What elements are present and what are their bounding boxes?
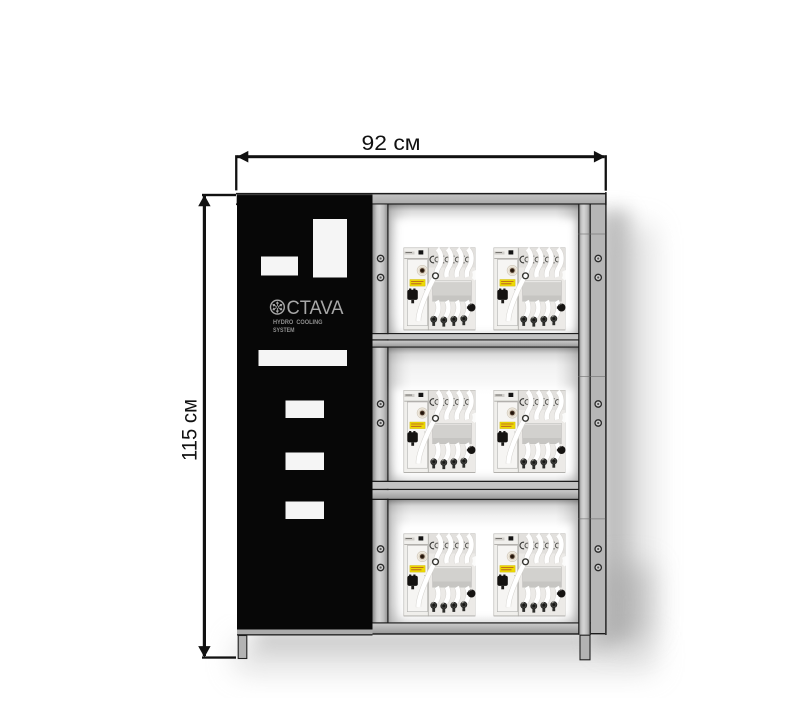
svg-text:HYDRO COOLING: HYDRO COOLING: [273, 319, 323, 326]
svg-text:SYSTEM: SYSTEM: [273, 327, 295, 334]
svg-text:CTAVA: CTAVA: [287, 297, 344, 319]
svg-text:115 см: 115 см: [178, 399, 202, 461]
svg-text:92 см: 92 см: [362, 131, 421, 155]
